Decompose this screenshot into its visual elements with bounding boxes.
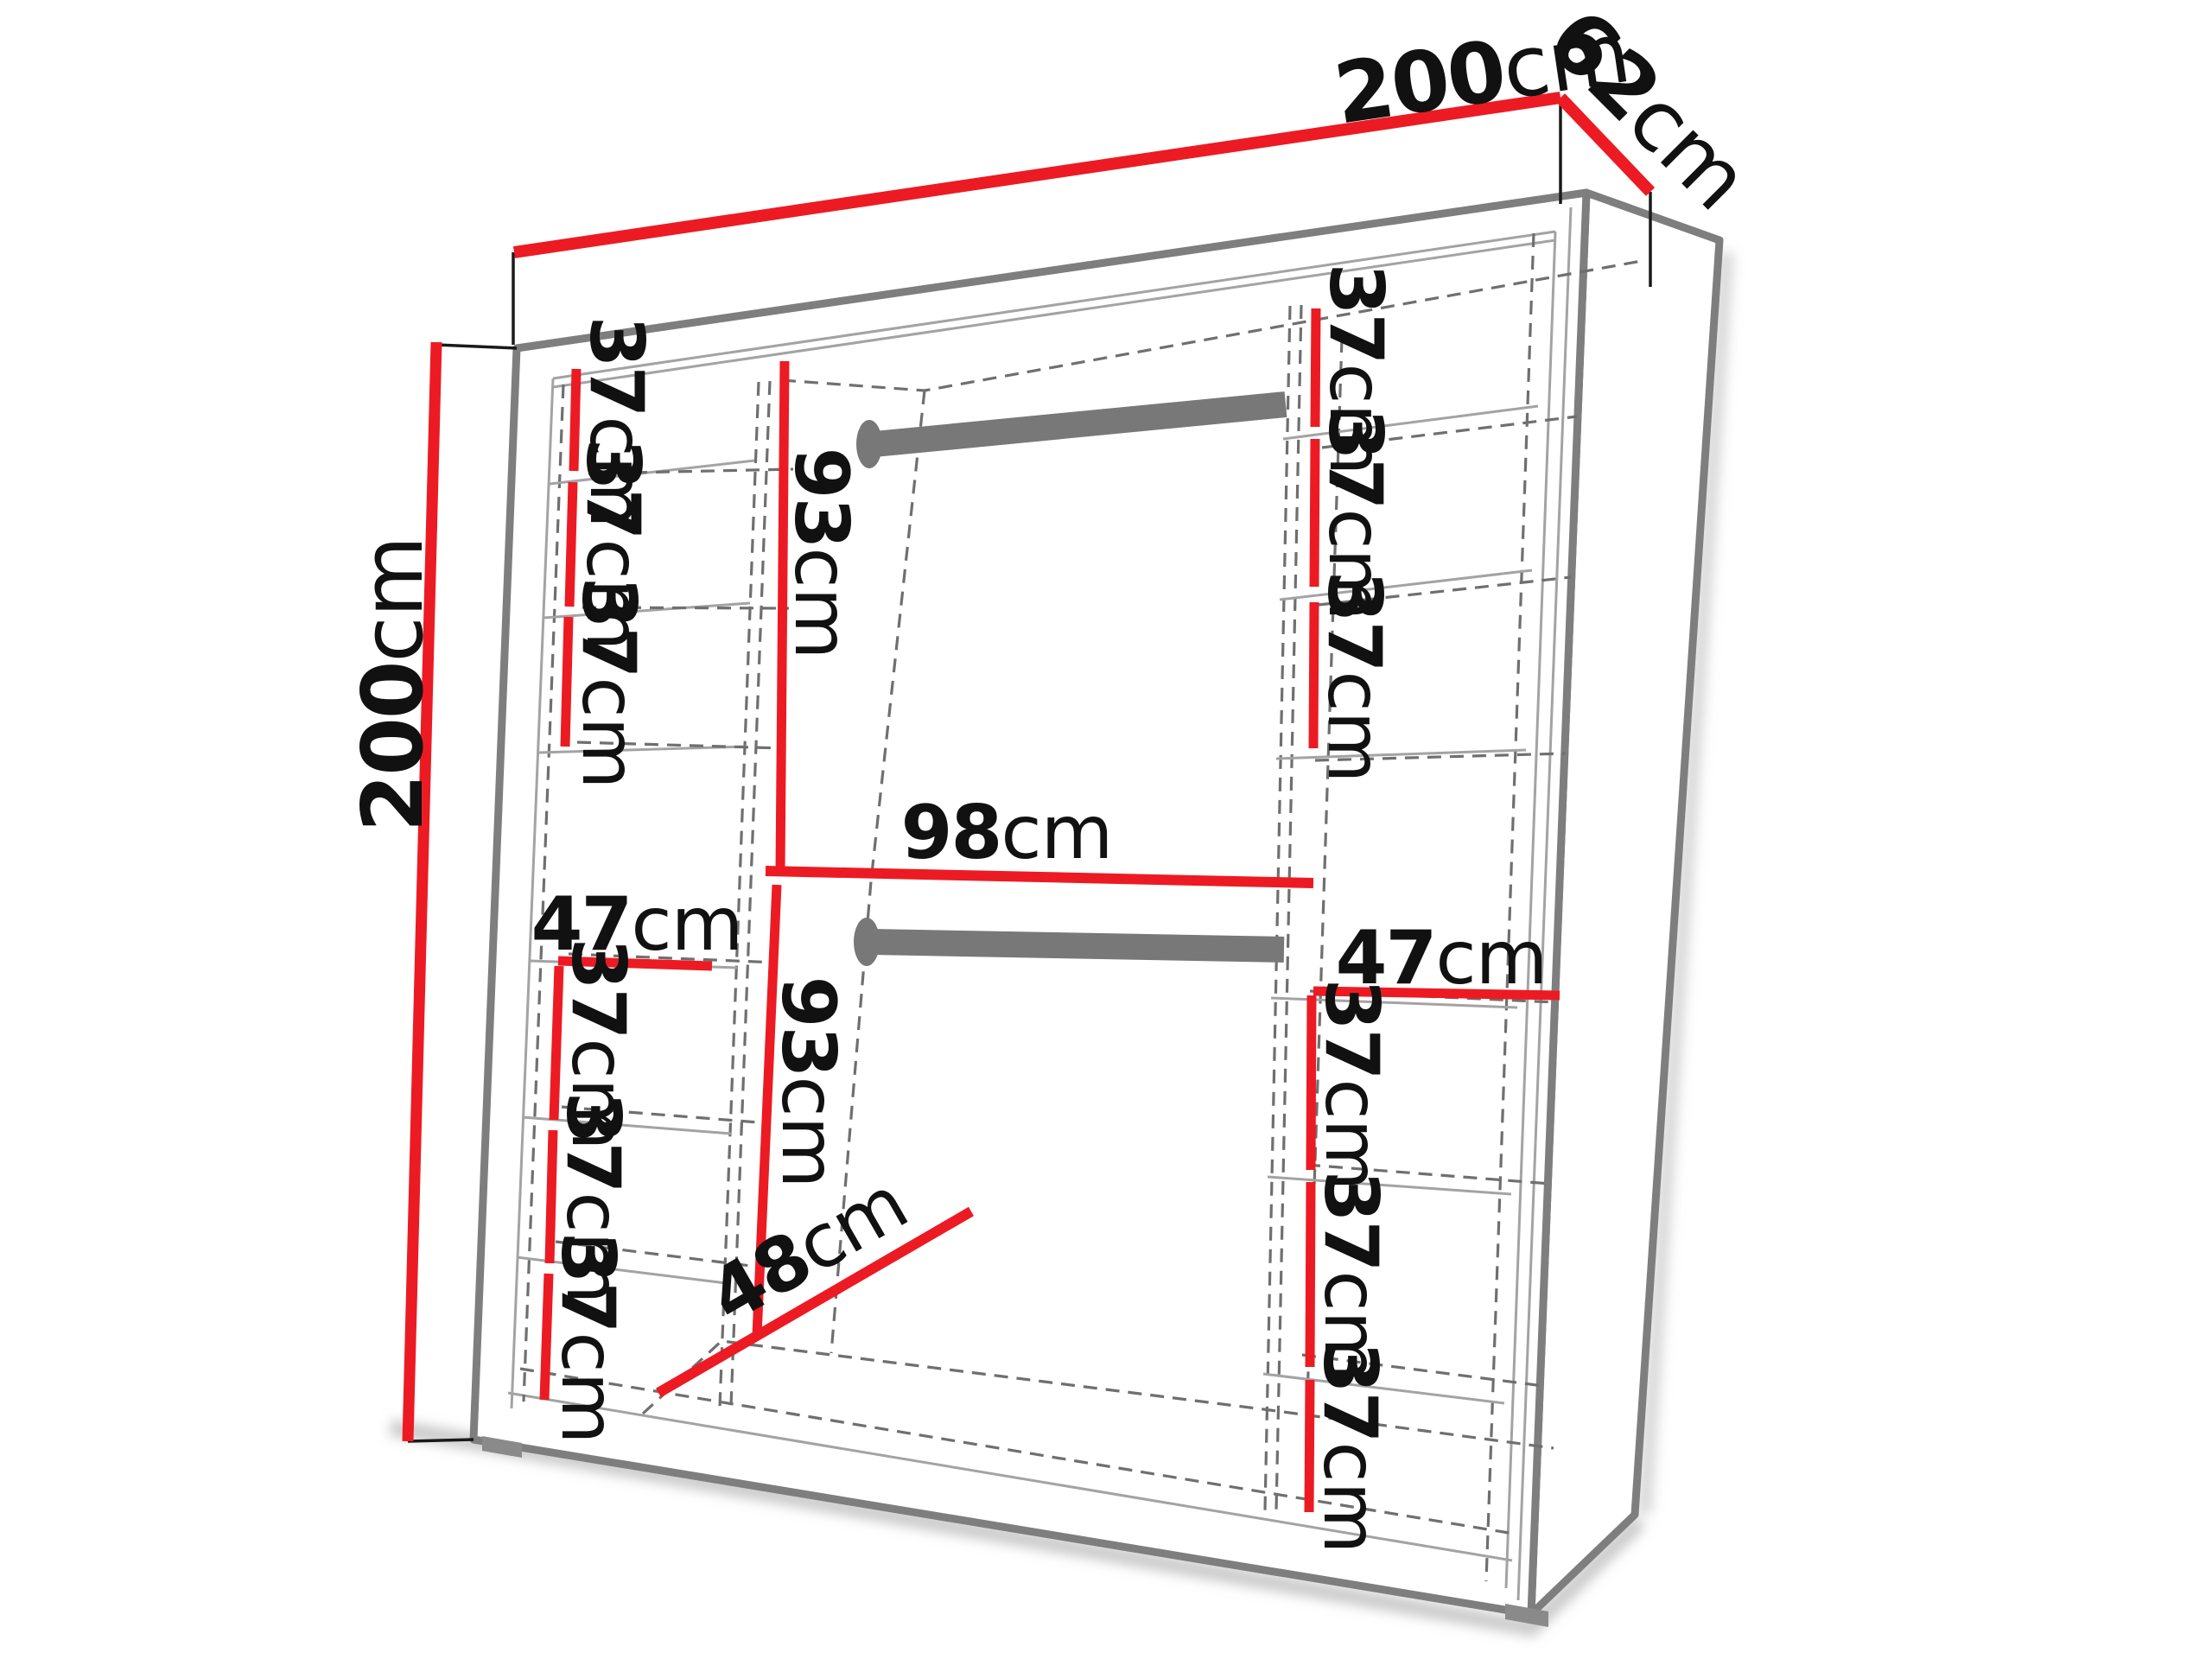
label-height: 200cm [344,537,442,832]
label-lower-hanging: 93cm [765,976,851,1188]
dim-line-height [408,342,436,1441]
ext-height-bottom [408,1440,474,1441]
label-right-gap-6: 37cm [1306,1342,1393,1554]
label-left-gap-6: 37cm [544,1232,631,1444]
label-left-gap-3: 37cm [565,577,652,789]
label-middle-width: 98cm [901,790,1113,876]
lower-rail [872,942,1284,950]
label-right-col-width: 47cm [1336,915,1548,1001]
diagram-canvas: 200cm 62cm 200cm 37cm 37cm 37cm 37cm 37c… [0,0,2212,1659]
ext-height-top [436,345,517,348]
label-right-gap-4: 37cm [1308,979,1395,1191]
label-left-col-width: 47cm [531,881,743,968]
wardrobe-dimension-diagram: 200cm 62cm 200cm 37cm 37cm 37cm 37cm 37c… [0,0,2212,1659]
lower-rail-end-cap [854,918,880,966]
label-upper-hanging: 93cm [778,448,864,659]
label-right-gap-3: 37cm [1311,571,1397,783]
